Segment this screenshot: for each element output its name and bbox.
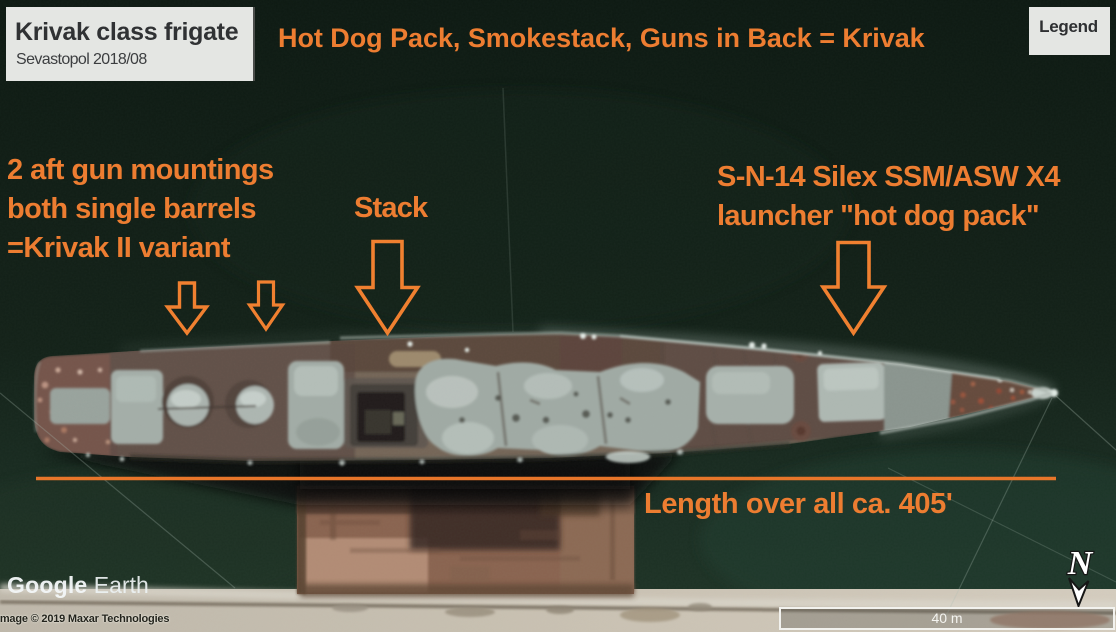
svg-text:N: N — [1067, 545, 1094, 582]
